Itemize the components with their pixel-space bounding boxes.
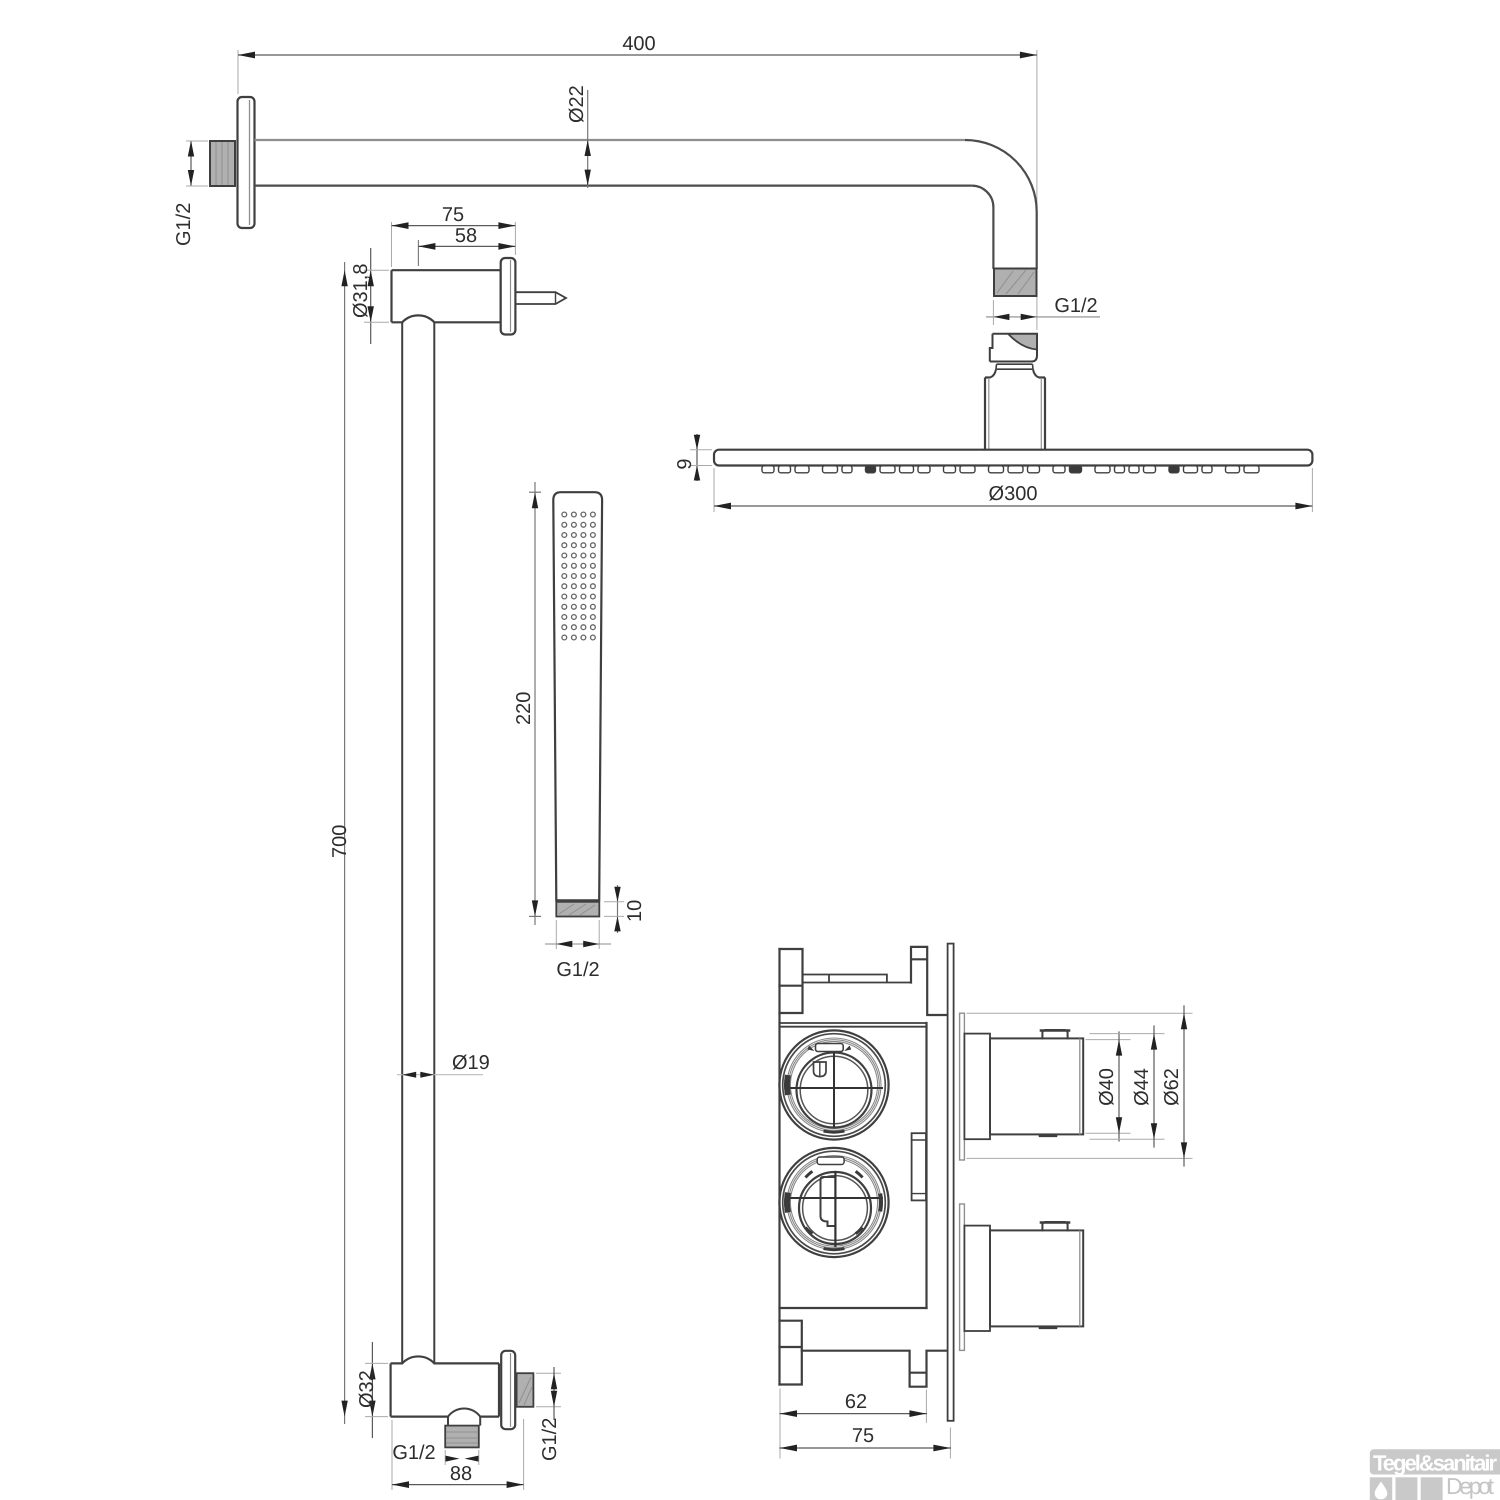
svg-text:G1/2: G1/2 xyxy=(173,203,195,246)
svg-text:88: 88 xyxy=(450,1463,472,1485)
svg-text:75: 75 xyxy=(852,1425,874,1447)
svg-text:G1/2: G1/2 xyxy=(392,1442,435,1464)
svg-text:G1/2: G1/2 xyxy=(556,959,599,981)
svg-text:9: 9 xyxy=(674,458,696,469)
svg-text:700: 700 xyxy=(329,825,351,858)
svg-text:58: 58 xyxy=(455,225,477,247)
svg-text:62: 62 xyxy=(845,1391,867,1413)
svg-text:75: 75 xyxy=(442,204,464,226)
svg-text:Depot: Depot xyxy=(1446,1473,1495,1499)
svg-text:Ø19: Ø19 xyxy=(452,1052,490,1074)
svg-text:Ø31,8: Ø31,8 xyxy=(350,264,372,318)
svg-text:Ø300: Ø300 xyxy=(989,483,1038,505)
svg-text:Ø62: Ø62 xyxy=(1161,1068,1183,1106)
svg-text:Ø44: Ø44 xyxy=(1131,1068,1153,1106)
svg-text:Ø32: Ø32 xyxy=(356,1370,378,1408)
svg-text:Ø40: Ø40 xyxy=(1096,1068,1118,1106)
svg-text:G1/2: G1/2 xyxy=(1054,295,1097,317)
svg-text:400: 400 xyxy=(622,33,655,55)
svg-text:Tegel&sanitair: Tegel&sanitair xyxy=(1373,1451,1497,1476)
svg-text:G1/2: G1/2 xyxy=(539,1418,561,1461)
svg-text:Ø22: Ø22 xyxy=(566,85,588,123)
svg-text:220: 220 xyxy=(513,692,535,725)
svg-text:10: 10 xyxy=(624,900,646,922)
